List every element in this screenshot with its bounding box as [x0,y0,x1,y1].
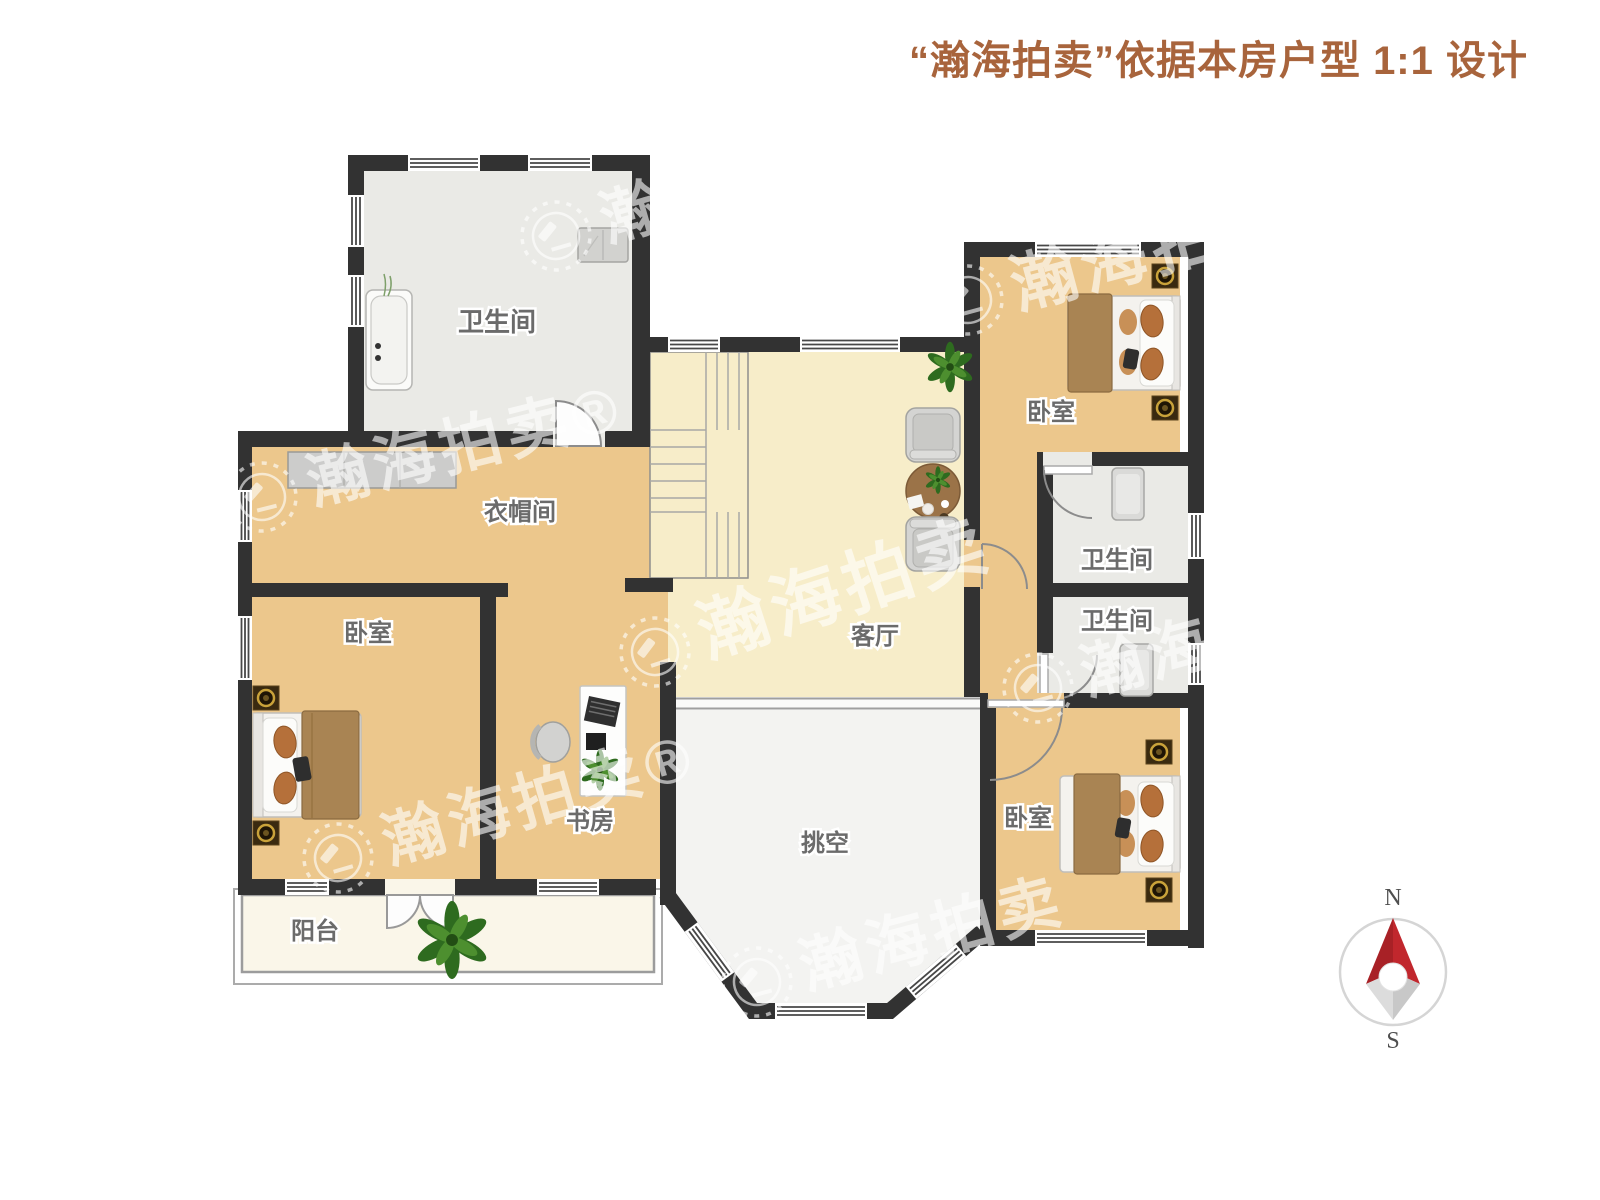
floor-plan-page: “瀚海拍卖”依据本房户型 1:1 设计 [0,0,1600,1200]
svg-text:瀚海拍卖: 瀚海拍卖 [592,114,872,255]
window [668,337,720,352]
label-balcony: 阳台 [291,917,339,945]
window [408,155,480,171]
floor-plan: 瀚海拍卖 瀚海拍卖® 瀚海拍卖 瀚海拍卖® 瀚海拍卖 瀚海拍卖 瀚海拍卖 卫生 [0,0,1600,1200]
nightstand [253,821,279,845]
bed [1068,294,1180,392]
bathtub [366,274,412,390]
bed [253,711,361,819]
window [537,879,599,895]
nightstand [253,686,279,710]
label-bathroom-upper-right: 卫生间 [1081,547,1153,574]
page-title: “瀚海拍卖”依据本房户型 1:1 设计 [909,28,1528,86]
window [285,879,329,895]
bed [1060,774,1180,874]
nightstand [1152,396,1178,420]
window [348,275,364,327]
void-railing [676,697,980,710]
armchair [906,408,960,462]
compass: N S [1340,885,1446,1054]
toilet [1112,468,1144,520]
label-cloakroom: 衣帽间 [484,498,556,526]
window [775,1003,867,1019]
compass-north-label: N [1384,885,1401,911]
label-bathroom-top-left: 卫生间 [458,307,536,337]
nightstand [1146,740,1172,764]
label-void: 挑空 [801,829,849,857]
label-bedroom-left: 卧室 [344,619,392,647]
label-bedroom-top-right: 卧室 [1027,398,1075,426]
label-bathroom-lower-right: 卫生间 [1081,608,1153,635]
compass-south-label: S [1386,1028,1399,1054]
window [348,195,364,247]
window [238,616,252,680]
window [800,337,900,352]
window [528,155,592,171]
staircase [650,352,748,578]
label-study: 书房 [566,807,614,835]
nightstand [1146,878,1172,902]
window [1188,513,1204,559]
label-living-room: 客厅 [851,622,899,650]
label-bedroom-bottom-right: 卧室 [1004,804,1052,832]
